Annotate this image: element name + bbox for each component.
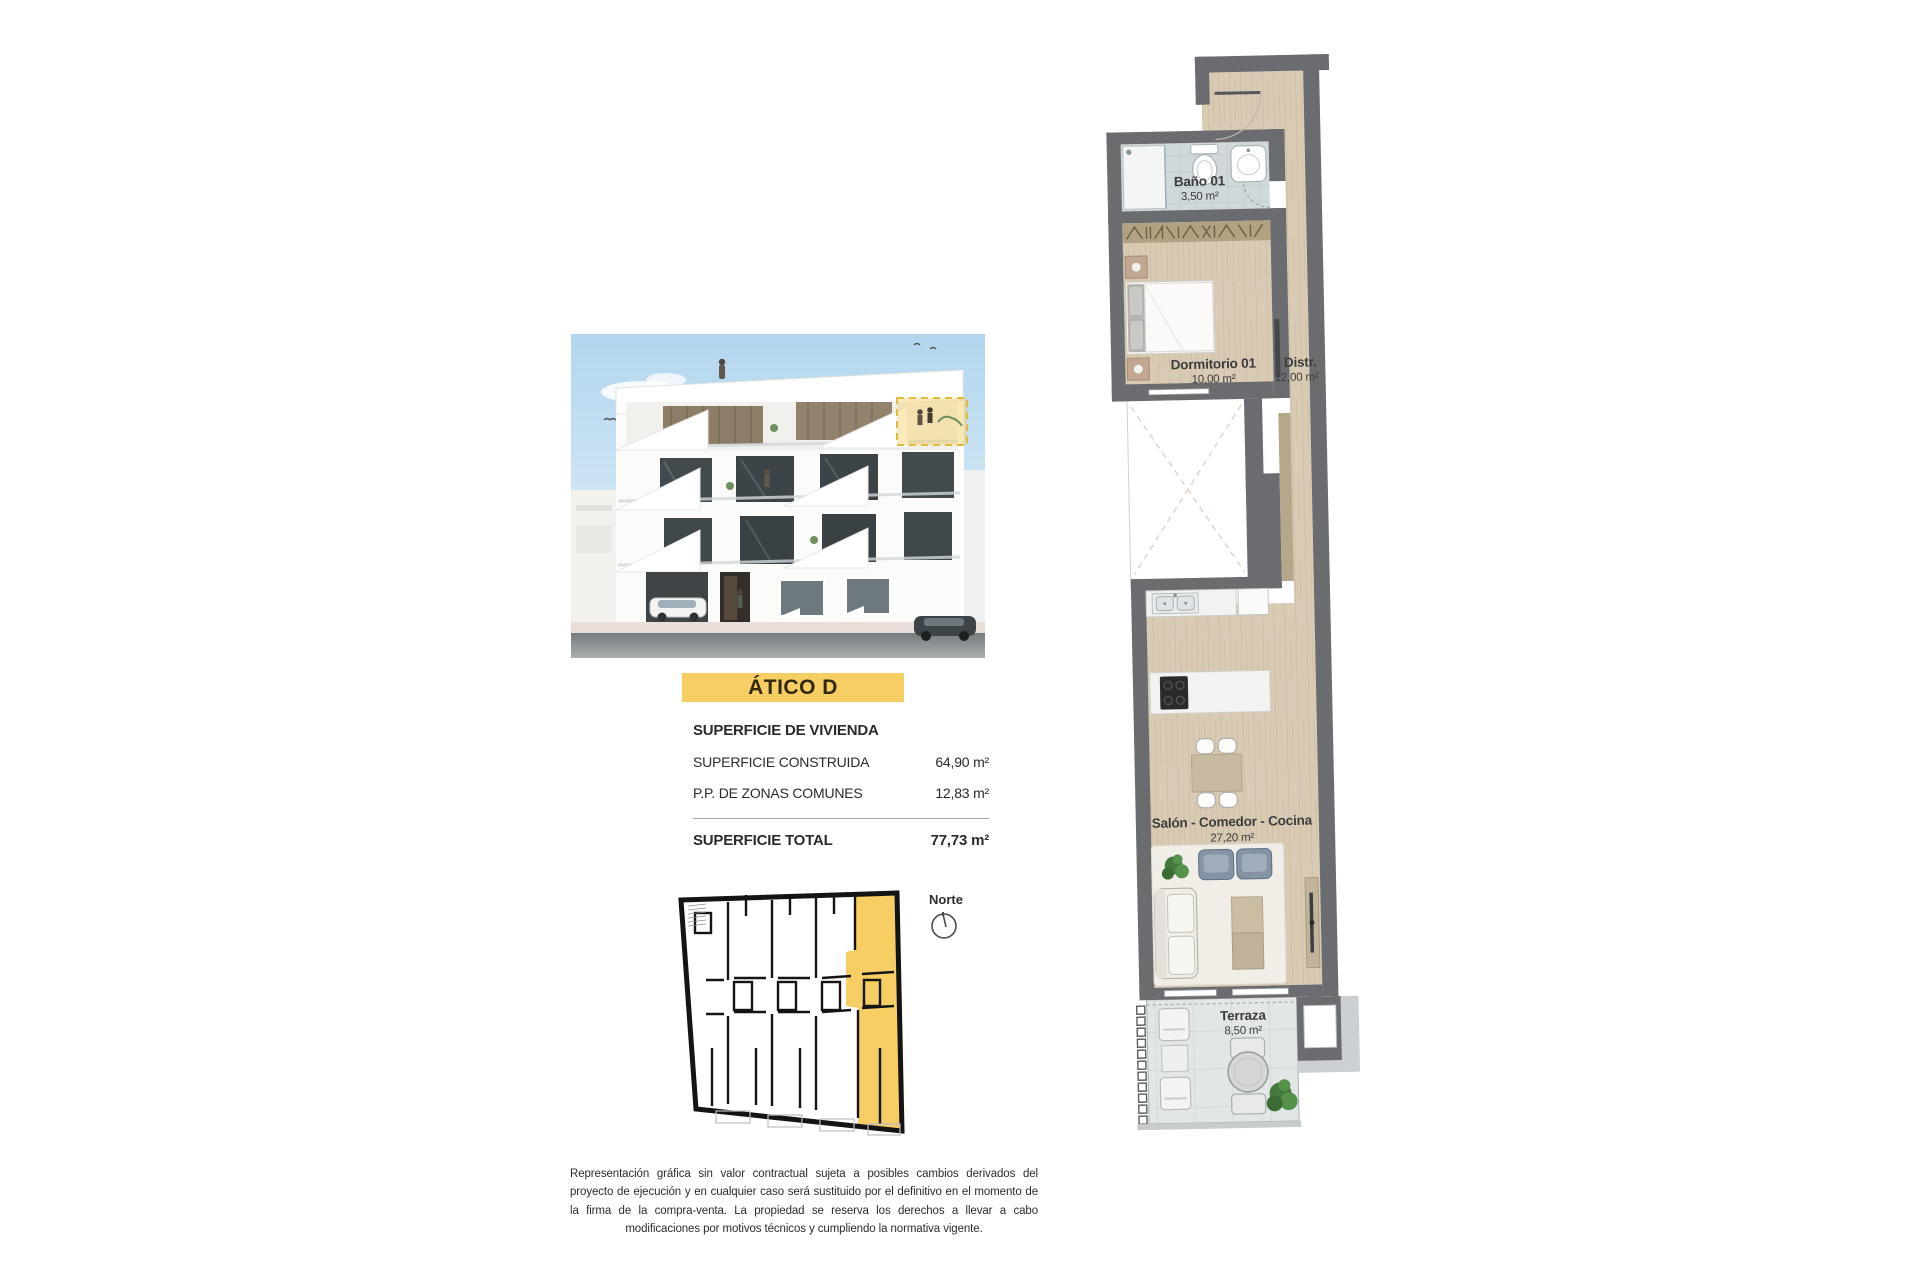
room-label-dormitorio: Dormitorio 01 bbox=[1171, 356, 1257, 373]
surface-row-label: P.P. DE ZONAS COMUNES bbox=[693, 785, 863, 801]
building-facade bbox=[616, 359, 967, 624]
coffee-table bbox=[1231, 897, 1264, 970]
armchair bbox=[1198, 849, 1234, 880]
page: ÁTICO D SUPERFICIE DE VIVIENDA SUPERFICI… bbox=[0, 0, 1920, 1280]
surface-divider bbox=[693, 818, 989, 819]
room-area-dormitorio: 10,00 m² bbox=[1192, 373, 1236, 386]
kitchen-island bbox=[1150, 670, 1271, 714]
surface-total-row: SUPERFICIE TOTAL 77,73 m² bbox=[693, 832, 989, 849]
disclaimer-text: Representación gráfica sin valor contrac… bbox=[570, 1165, 1038, 1240]
room-area-bano: 3,50 m² bbox=[1181, 190, 1219, 203]
surface-total-value: 77,73 m² bbox=[931, 832, 989, 849]
north-label: Norte bbox=[929, 892, 963, 907]
north-compass-icon bbox=[932, 912, 956, 938]
room-area-terraza: 8,50 m² bbox=[1224, 1025, 1262, 1038]
kitchen-appliance bbox=[1238, 588, 1269, 615]
person-on-roof bbox=[719, 359, 725, 379]
surface-total-label: SUPERFICIE TOTAL bbox=[693, 832, 833, 849]
bedroom-window bbox=[1149, 389, 1209, 395]
sofa bbox=[1154, 888, 1198, 979]
shower bbox=[1123, 145, 1166, 209]
sink bbox=[1231, 145, 1267, 182]
lounge-chairs bbox=[1159, 1008, 1191, 1110]
surface-row-label: SUPERFICIE CONSTRUIDA bbox=[693, 754, 869, 770]
armchair bbox=[1236, 848, 1272, 879]
unit-highlight-box bbox=[897, 398, 967, 445]
room-area-distr: 12,00 m² bbox=[1275, 371, 1319, 384]
room-area-salon: 27,20 m² bbox=[1210, 832, 1254, 845]
surface-row: P.P. DE ZONAS COMUNES 12,83 m² bbox=[693, 785, 989, 801]
cooktop bbox=[1160, 676, 1189, 710]
key-plan-stairs bbox=[688, 904, 706, 926]
surface-row-value: 64,90 m² bbox=[935, 754, 989, 770]
north-indicator: Norte bbox=[929, 892, 963, 938]
room-label-distr: Distr. bbox=[1284, 354, 1317, 370]
terrace-table-set bbox=[1227, 1038, 1269, 1115]
surface-info: SUPERFICIE DE VIVIENDA SUPERFICIE CONSTR… bbox=[693, 722, 989, 849]
surface-row: SUPERFICIE CONSTRUIDA 64,90 m² bbox=[693, 754, 989, 770]
neighbor-terrace bbox=[1297, 996, 1361, 1073]
person-at-door bbox=[737, 589, 743, 608]
street bbox=[571, 616, 985, 658]
terrace-railing bbox=[1137, 1006, 1147, 1124]
dining-table bbox=[1191, 754, 1242, 792]
wardrobe bbox=[1122, 220, 1270, 243]
title-banner: ÁTICO D bbox=[682, 673, 904, 702]
room-label-bano: Baño 01 bbox=[1174, 173, 1226, 189]
surface-row-value: 12,83 m² bbox=[935, 785, 989, 801]
room-label-terraza: Terraza bbox=[1220, 1008, 1267, 1024]
key-plan: Norte bbox=[676, 888, 976, 1150]
floor-plan: Baño 01 3,50 m² Dormitorio 01 10,00 m² D… bbox=[1097, 39, 1385, 1142]
title-banner-label: ÁTICO D bbox=[748, 676, 838, 700]
building-rendering bbox=[568, 300, 988, 660]
surface-header: SUPERFICIE DE VIVIENDA bbox=[693, 722, 989, 739]
patio-void bbox=[1127, 399, 1248, 579]
tv-sideboard bbox=[1305, 877, 1320, 967]
